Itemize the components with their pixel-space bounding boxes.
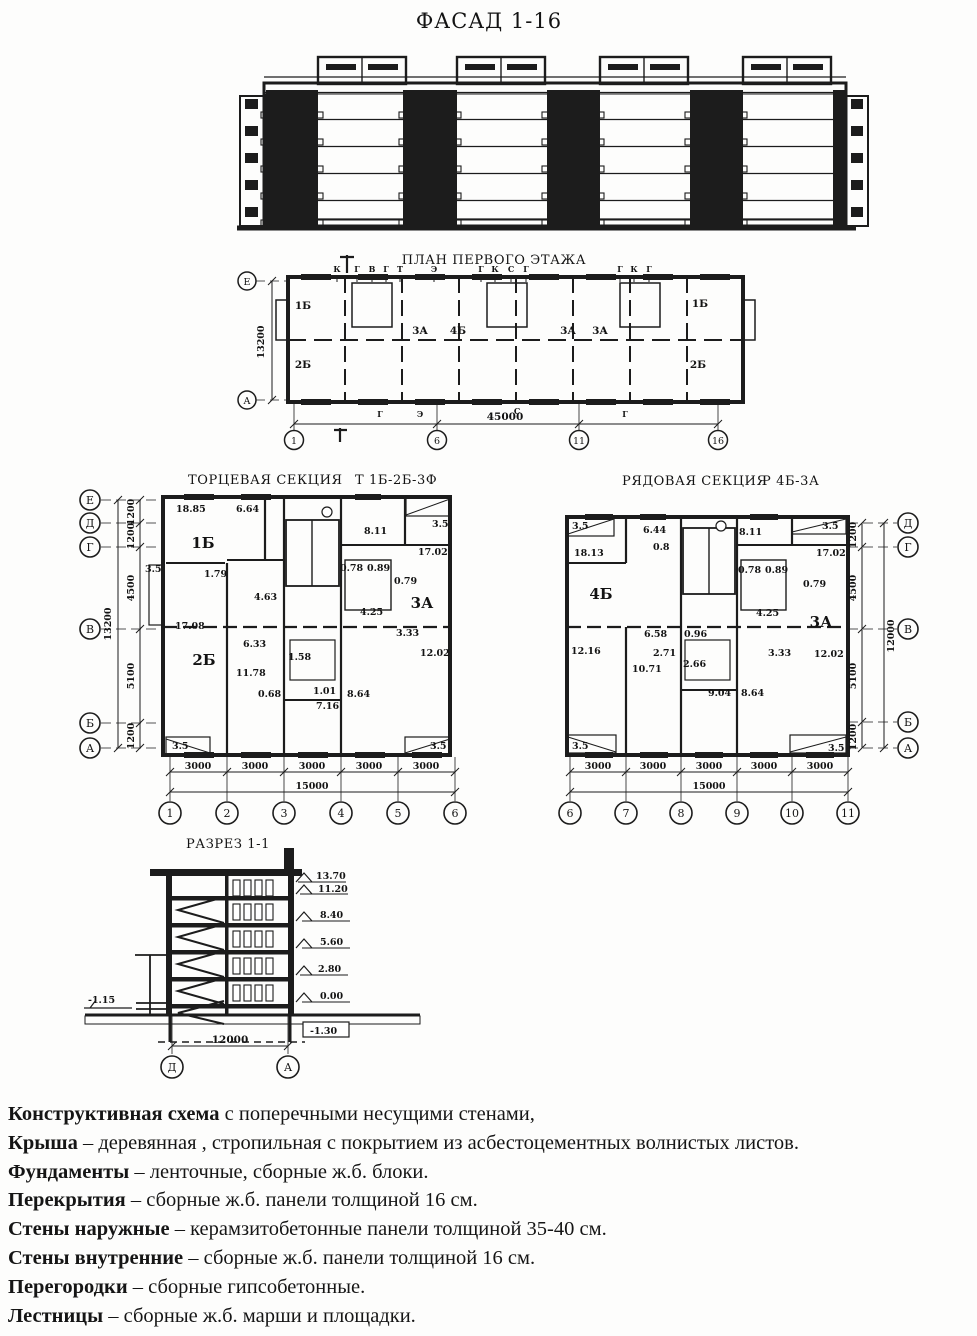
area-label: 10.71 <box>632 664 662 675</box>
end-section-code: Т 1Б-2Б-3Ф <box>355 473 437 488</box>
area-label: 0.8 <box>653 542 670 553</box>
riser-mark: Г <box>646 264 652 274</box>
note-text: – сборные гипсобетонные. <box>128 1276 366 1298</box>
dim-label: 3000 <box>242 761 269 772</box>
elevation-label: 2.80 <box>318 964 342 975</box>
area-label: 8.11 <box>364 526 387 537</box>
room-label: 1Б <box>191 534 214 552</box>
row-section-title: РЯДОВАЯ СЕКЦИЯ <box>622 474 768 489</box>
riser-mark: Г <box>622 409 628 419</box>
end-section-title: ТОРЦЕВАЯ СЕКЦИЯ <box>188 473 343 488</box>
elevation-label: 13.70 <box>316 871 346 882</box>
dim-label: 1200 <box>126 722 137 749</box>
area-label: 3.5 <box>172 741 189 752</box>
area-label: 3.5 <box>572 521 589 532</box>
room-label: 1Б <box>692 298 708 310</box>
axis-label: 6 <box>567 807 574 820</box>
riser-mark: Т <box>397 264 403 274</box>
note-term: Лестницы <box>8 1305 103 1327</box>
area-label: 2.66 <box>683 659 707 670</box>
axis-label: 10 <box>785 807 799 820</box>
dim-label: 5100 <box>126 662 137 689</box>
stair-block <box>352 283 392 327</box>
note-term: Конструктивная схема <box>8 1103 220 1125</box>
note-term: Стены наружные <box>8 1218 170 1240</box>
dim-label: 3000 <box>185 761 212 772</box>
axis-label: А <box>284 1061 293 1074</box>
elevation-label: -1.30 <box>310 1026 337 1037</box>
room-label: 1Б <box>295 300 311 312</box>
axis-label: 3 <box>281 807 288 820</box>
area-label: 3.5 <box>430 741 447 752</box>
area-label: 6.58 <box>644 629 668 640</box>
area-label: 3.33 <box>396 628 419 639</box>
stair-block <box>487 283 527 327</box>
area-label: 17.08 <box>175 621 205 632</box>
area-label: 3.5 <box>822 521 839 532</box>
dim-label: 1200 <box>126 522 137 549</box>
axis-label: 7 <box>623 807 630 820</box>
riser-mark: Э <box>431 264 437 274</box>
axis-label: Б <box>904 716 912 729</box>
dim-label: 1200 <box>848 521 859 548</box>
dim-label: 45000 <box>487 411 524 423</box>
axis-label: Д <box>904 517 913 530</box>
axis-label: Г <box>904 541 911 554</box>
note-term: Перекрытия <box>8 1189 126 1211</box>
area-label: 12.16 <box>571 646 601 657</box>
area-label: 8.64 <box>347 689 371 700</box>
area-label: 1.79 <box>204 569 228 580</box>
note-text: – керамзитобетонные панели толщиной 35-4… <box>170 1218 607 1240</box>
note-term: Перегородки <box>8 1276 128 1298</box>
area-label: 3.5 <box>432 519 449 530</box>
axis-label: Е <box>244 277 251 288</box>
area-label: 7.16 <box>316 701 340 712</box>
dim-label: 3000 <box>751 761 778 772</box>
facade-title: ФАСАД 1-16 <box>416 9 562 33</box>
note-term: Крыша <box>8 1132 78 1154</box>
note-text: – сборные ж.б. панели толщиной 16 см. <box>126 1189 478 1211</box>
note-text: с поперечными несущими стенами, <box>220 1103 535 1125</box>
note-term: Стены внутренние <box>8 1247 183 1269</box>
axis-label: 5 <box>395 807 402 820</box>
room-label: 3А <box>412 325 428 337</box>
axis-label: А <box>86 742 95 755</box>
riser-mark: Г <box>383 264 389 274</box>
room-label: 3А <box>810 613 833 631</box>
riser-mark: С <box>508 264 514 274</box>
facade-drawing: ФАСАД 1-16 <box>237 9 868 228</box>
dim-label: 1200 <box>848 723 859 750</box>
area-label: 4.25 <box>360 607 383 618</box>
note-line: Перегородки – сборные гипсобетонные. <box>8 1273 977 1302</box>
axis-label: 6 <box>434 436 440 447</box>
end-section-plan: ТОРЦЕВАЯ СЕКЦИЯ Т 1Б-2Б-3Ф 1Б 2Б 3А 18.8… <box>80 473 466 824</box>
room-label: 2Б <box>295 359 311 371</box>
axis-label: 9 <box>734 807 741 820</box>
dim-label: 4500 <box>848 574 859 601</box>
riser-mark: Г <box>617 264 623 274</box>
room-label: 2Б <box>192 651 215 669</box>
room-label: 3А <box>592 325 608 337</box>
axis-label: 16 <box>712 436 724 447</box>
area-label: 4.63 <box>254 592 277 603</box>
area-label: 8.11 <box>739 527 762 538</box>
riser-mark: Г <box>523 264 529 274</box>
dim-label: 12000 <box>886 619 897 652</box>
dim-label: 12000 <box>212 1034 249 1046</box>
area-label: 0.68 <box>258 689 282 700</box>
dim-label: 15000 <box>295 781 328 792</box>
axis-label: Д <box>86 517 95 530</box>
axis-label: В <box>904 623 912 636</box>
riser-mark: Г <box>354 264 360 274</box>
area-label: 3.5 <box>828 743 845 754</box>
stair-block <box>620 283 660 327</box>
area-label: 18.85 <box>176 504 206 515</box>
dim-label: 3000 <box>696 761 723 772</box>
area-label: 0.96 <box>684 629 708 640</box>
note-text: – деревянная , стропильная с покрытием и… <box>78 1132 799 1154</box>
dim-label: 3000 <box>640 761 667 772</box>
dim-label: 15000 <box>692 781 725 792</box>
building-cross-section: РАЗРЕЗ 1-1 13.70 11.20 8.40 5.60 2.80 0.… <box>84 837 420 1078</box>
dim-label: 3000 <box>413 761 440 772</box>
area-label: 0.89 <box>765 565 789 576</box>
dim-label: 13200 <box>256 325 267 358</box>
room-label: 3А <box>560 325 576 337</box>
row-section-code: Р 4Б-3А <box>762 474 819 489</box>
room-label: 2Б <box>690 359 706 371</box>
dim-label: 13200 <box>103 607 114 640</box>
area-label: 12.02 <box>420 648 450 659</box>
stair-window <box>322 507 332 517</box>
drawings-canvas: ФАСАД 1-16 ПЛАН ПЕРВОГО ЭТАЖА <box>0 0 977 1100</box>
riser-mark: Э <box>417 409 423 419</box>
axis-label: Д <box>168 1061 177 1074</box>
axis-label: Б <box>86 717 94 730</box>
riser-mark: К <box>333 264 341 274</box>
dim-label: 5100 <box>848 662 859 689</box>
area-label: 0.79 <box>803 579 827 590</box>
note-term: Фундаменты <box>8 1161 129 1183</box>
axis-label: Е <box>86 494 94 507</box>
room-label: 4Б <box>589 585 612 603</box>
area-label: 0.89 <box>367 563 391 574</box>
riser-mark: К <box>630 264 638 274</box>
note-line: Стены наружные – керамзитобетонные панел… <box>8 1215 977 1244</box>
area-label: 6.64 <box>236 504 260 515</box>
axis-label: 1 <box>291 436 297 447</box>
area-label: 8.64 <box>741 688 765 699</box>
room-label: 4Б <box>450 325 466 337</box>
note-line: Лестницы – сборные ж.б. марши и площадки… <box>8 1302 977 1331</box>
riser-mark: К <box>491 264 499 274</box>
area-label: 0.78 <box>340 563 364 574</box>
dim-label: 3000 <box>585 761 612 772</box>
area-label: 9.04 <box>708 688 732 699</box>
area-label: 6.44 <box>643 525 667 536</box>
axis-label: 11 <box>573 436 585 447</box>
axis-label: А <box>904 742 913 755</box>
note-text: – ленточные, сборные ж.б. блоки. <box>129 1161 428 1183</box>
area-label: 3.33 <box>768 648 791 659</box>
area-label: 17.02 <box>816 548 846 559</box>
axis-label: А <box>243 396 251 407</box>
area-label: 1.01 <box>313 686 336 697</box>
riser-mark: Г <box>478 264 484 274</box>
riser-mark: Г <box>377 409 383 419</box>
dim-label: 1200 <box>126 498 137 525</box>
dim-label: 3000 <box>807 761 834 772</box>
area-label: 0.78 <box>738 565 762 576</box>
stair-window <box>716 521 726 531</box>
dim-label: 3000 <box>299 761 326 772</box>
axis-label: 1 <box>167 807 174 820</box>
axis-label: 11 <box>841 807 855 820</box>
area-label: 2.71 <box>653 648 676 659</box>
axis-label: 8 <box>678 807 685 820</box>
area-label: 3.5 <box>145 564 162 575</box>
row-section-plan: РЯДОВАЯ СЕКЦИЯ Р 4Б-3А 4Б 3А 3.5 18.13 6… <box>559 474 918 824</box>
room-label: 3А <box>411 594 434 612</box>
elevation-label: 0.00 <box>320 991 344 1002</box>
area-label: 12.02 <box>814 649 844 660</box>
section-title: РАЗРЕЗ 1-1 <box>186 837 270 852</box>
elevation-label: 8.40 <box>320 910 344 921</box>
elevation-label: 11.20 <box>318 884 348 895</box>
axis-label: 2 <box>224 807 231 820</box>
dim-label: 4500 <box>126 574 137 601</box>
note-line: Конструктивная схема с поперечными несущ… <box>8 1100 977 1129</box>
area-label: 6.33 <box>243 639 266 650</box>
area-label: 3.5 <box>572 741 589 752</box>
area-label: 17.02 <box>418 547 448 558</box>
note-line: Перекрытия – сборные ж.б. панели толщино… <box>8 1186 977 1215</box>
elevation-label: 5.60 <box>320 937 344 948</box>
dim-label: 3000 <box>356 761 383 772</box>
axis-label: 4 <box>338 807 345 820</box>
note-line: Крыша – деревянная , стропильная с покры… <box>8 1129 977 1158</box>
axis-label: В <box>86 623 94 636</box>
construction-notes: Конструктивная схема с поперечными несущ… <box>0 1100 977 1330</box>
scanned-drawing-page: ФАСАД 1-16 ПЛАН ПЕРВОГО ЭТАЖА <box>0 0 977 1336</box>
axis-label: 6 <box>452 807 459 820</box>
area-label: 1.58 <box>288 652 312 663</box>
first-floor-plan: ПЛАН ПЕРВОГО ЭТАЖА 1Б 2Б 3А 4Б 3А 3А 1Б … <box>238 253 755 450</box>
riser-mark: В <box>369 264 376 274</box>
note-text: – сборные ж.б. марши и площадки. <box>103 1305 416 1327</box>
area-label: 0.79 <box>394 576 418 587</box>
axis-label: Г <box>86 541 93 554</box>
note-text: – сборные ж.б. панели толщиной 16 см. <box>183 1247 535 1269</box>
area-label: 11.78 <box>236 668 266 679</box>
note-line: Стены внутренние – сборные ж.б. панели т… <box>8 1244 977 1273</box>
note-line: Фундаменты – ленточные, сборные ж.б. бло… <box>8 1158 977 1187</box>
area-label: 4.25 <box>756 608 779 619</box>
area-label: 18.13 <box>574 548 604 559</box>
